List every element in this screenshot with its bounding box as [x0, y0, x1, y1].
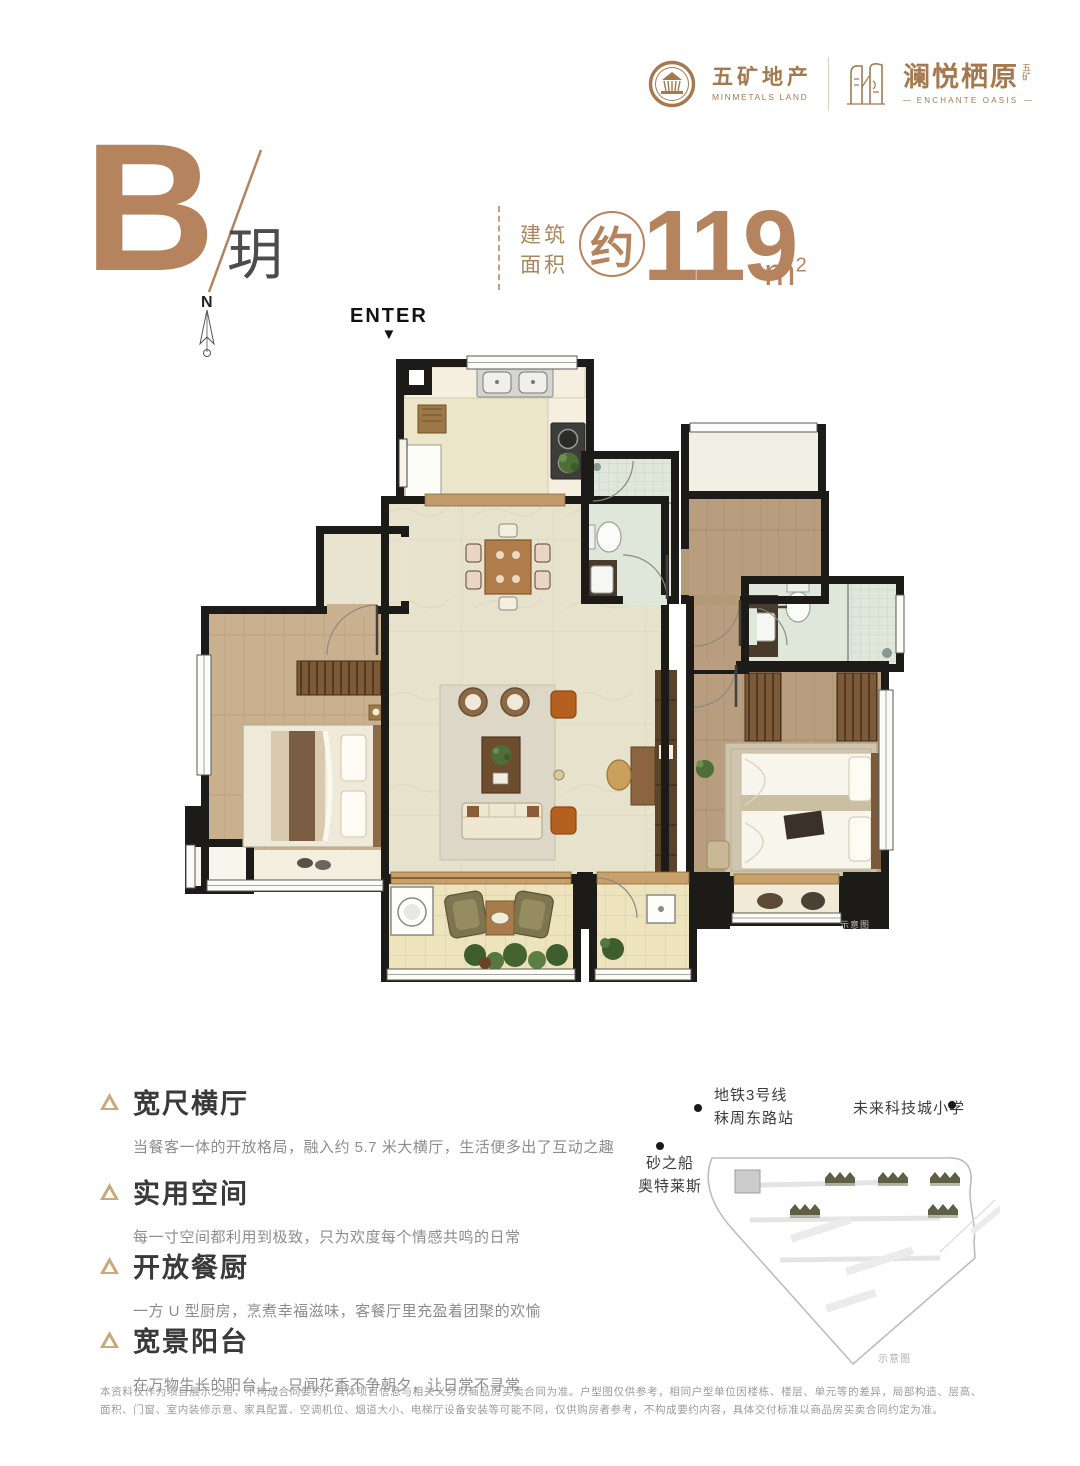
map-caption: 示意图: [878, 1350, 911, 1365]
plan-watermark: 示意图: [840, 918, 870, 931]
minmetals-name-cn: 五矿地产: [712, 66, 812, 89]
feature-desc: 每一寸空间都利用到极致，只为欢度每个情感共鸣的日常: [133, 1226, 660, 1247]
floorplan-poster: 五矿地产 MINMETALS LAND 澜悦栖原五矿 ENCHANTE OASI…: [0, 0, 1080, 1466]
school-poi-label: 未来科技城小学: [853, 1097, 965, 1120]
metro-poi-label: 地铁3号线 秣周东路站: [714, 1084, 794, 1131]
outlets-poi-label: 砂之船 奥特莱斯: [638, 1152, 702, 1199]
mountain-bullet-icon: [100, 1183, 119, 1200]
feature-item: 开放餐厨 一方 U 型厨房，烹煮幸福滋味，客餐厅里充盈着团聚的欢愉: [100, 1246, 660, 1321]
brand-bar: 五矿地产 MINMETALS LAND 澜悦栖原五矿 ENCHANTE OASI…: [648, 52, 1032, 116]
approx-char: 约: [590, 212, 634, 276]
feature-title: 开放餐厨: [133, 1246, 249, 1285]
wall-notch: [409, 370, 424, 385]
balcony-utility: [593, 878, 693, 978]
enter-label: ENTER ▼: [350, 305, 428, 342]
feature-title: 宽景阳台: [133, 1320, 249, 1359]
feature-item: 实用空间 每一寸空间都利用到极致，只为欢度每个情感共鸣的日常: [100, 1172, 660, 1247]
feature-title: 实用空间: [133, 1172, 249, 1211]
metro-poi-dot: [694, 1104, 702, 1112]
project-name-en: ENCHANTE OASIS: [903, 96, 1032, 105]
project-name-cn: 澜悦栖原: [903, 62, 1019, 92]
map-plaza: [735, 1170, 760, 1193]
area-prefix: 建筑 面积: [520, 221, 568, 282]
enter-arrow-icon: ▼: [350, 328, 428, 342]
school-poi-dot: [948, 1101, 956, 1109]
project-logo-text: 澜悦栖原五矿 ENCHANTE OASIS: [903, 64, 1032, 105]
outlets-poi-dot: [656, 1142, 664, 1150]
area-dashed-divider: [498, 206, 500, 290]
unit-name: 玥: [227, 210, 283, 291]
minmetals-logo-icon: [648, 60, 696, 108]
equipment-platform: [685, 428, 822, 495]
feature-item: 宽尺横厅 当餐客一体的开放格局，融入约 5.7 米大横厅，生活便多出了互动之趣: [100, 1082, 660, 1157]
feature-desc: 一方 U 型厨房，烹煮幸福滋味，客餐厅里充盈着团聚的欢愉: [133, 1300, 660, 1321]
mountain-bullet-icon: [100, 1093, 119, 1110]
area-unit: m2: [764, 252, 807, 295]
corridor-extension: [690, 600, 745, 670]
unit-letter: B: [84, 116, 215, 298]
mountain-bullet-icon: [100, 1257, 119, 1274]
feature-desc: 当餐客一体的开放格局，融入约 5.7 米大横厅，生活便多出了互动之趣: [133, 1136, 660, 1157]
minmetals-logo-text: 五矿地产 MINMETALS LAND: [712, 66, 812, 102]
mountain-bullet-icon: [100, 1331, 119, 1348]
project-name-sup: 五矿: [1022, 64, 1032, 84]
minmetals-name-en: MINMETALS LAND: [712, 92, 812, 102]
north-compass: N: [186, 292, 228, 362]
approx-circle: 约: [579, 211, 645, 277]
svg-text:N: N: [201, 294, 213, 311]
floor-plan: [185, 355, 905, 1005]
project-logo-icon: [845, 61, 887, 107]
feature-title: 宽尺横厅: [133, 1082, 249, 1121]
disclaimer-text: 本资料仅作为项目展示之用，不构成合同要约；具体项目信息与相关义务以商品房买卖合同…: [100, 1384, 982, 1420]
brand-divider: [828, 57, 829, 111]
